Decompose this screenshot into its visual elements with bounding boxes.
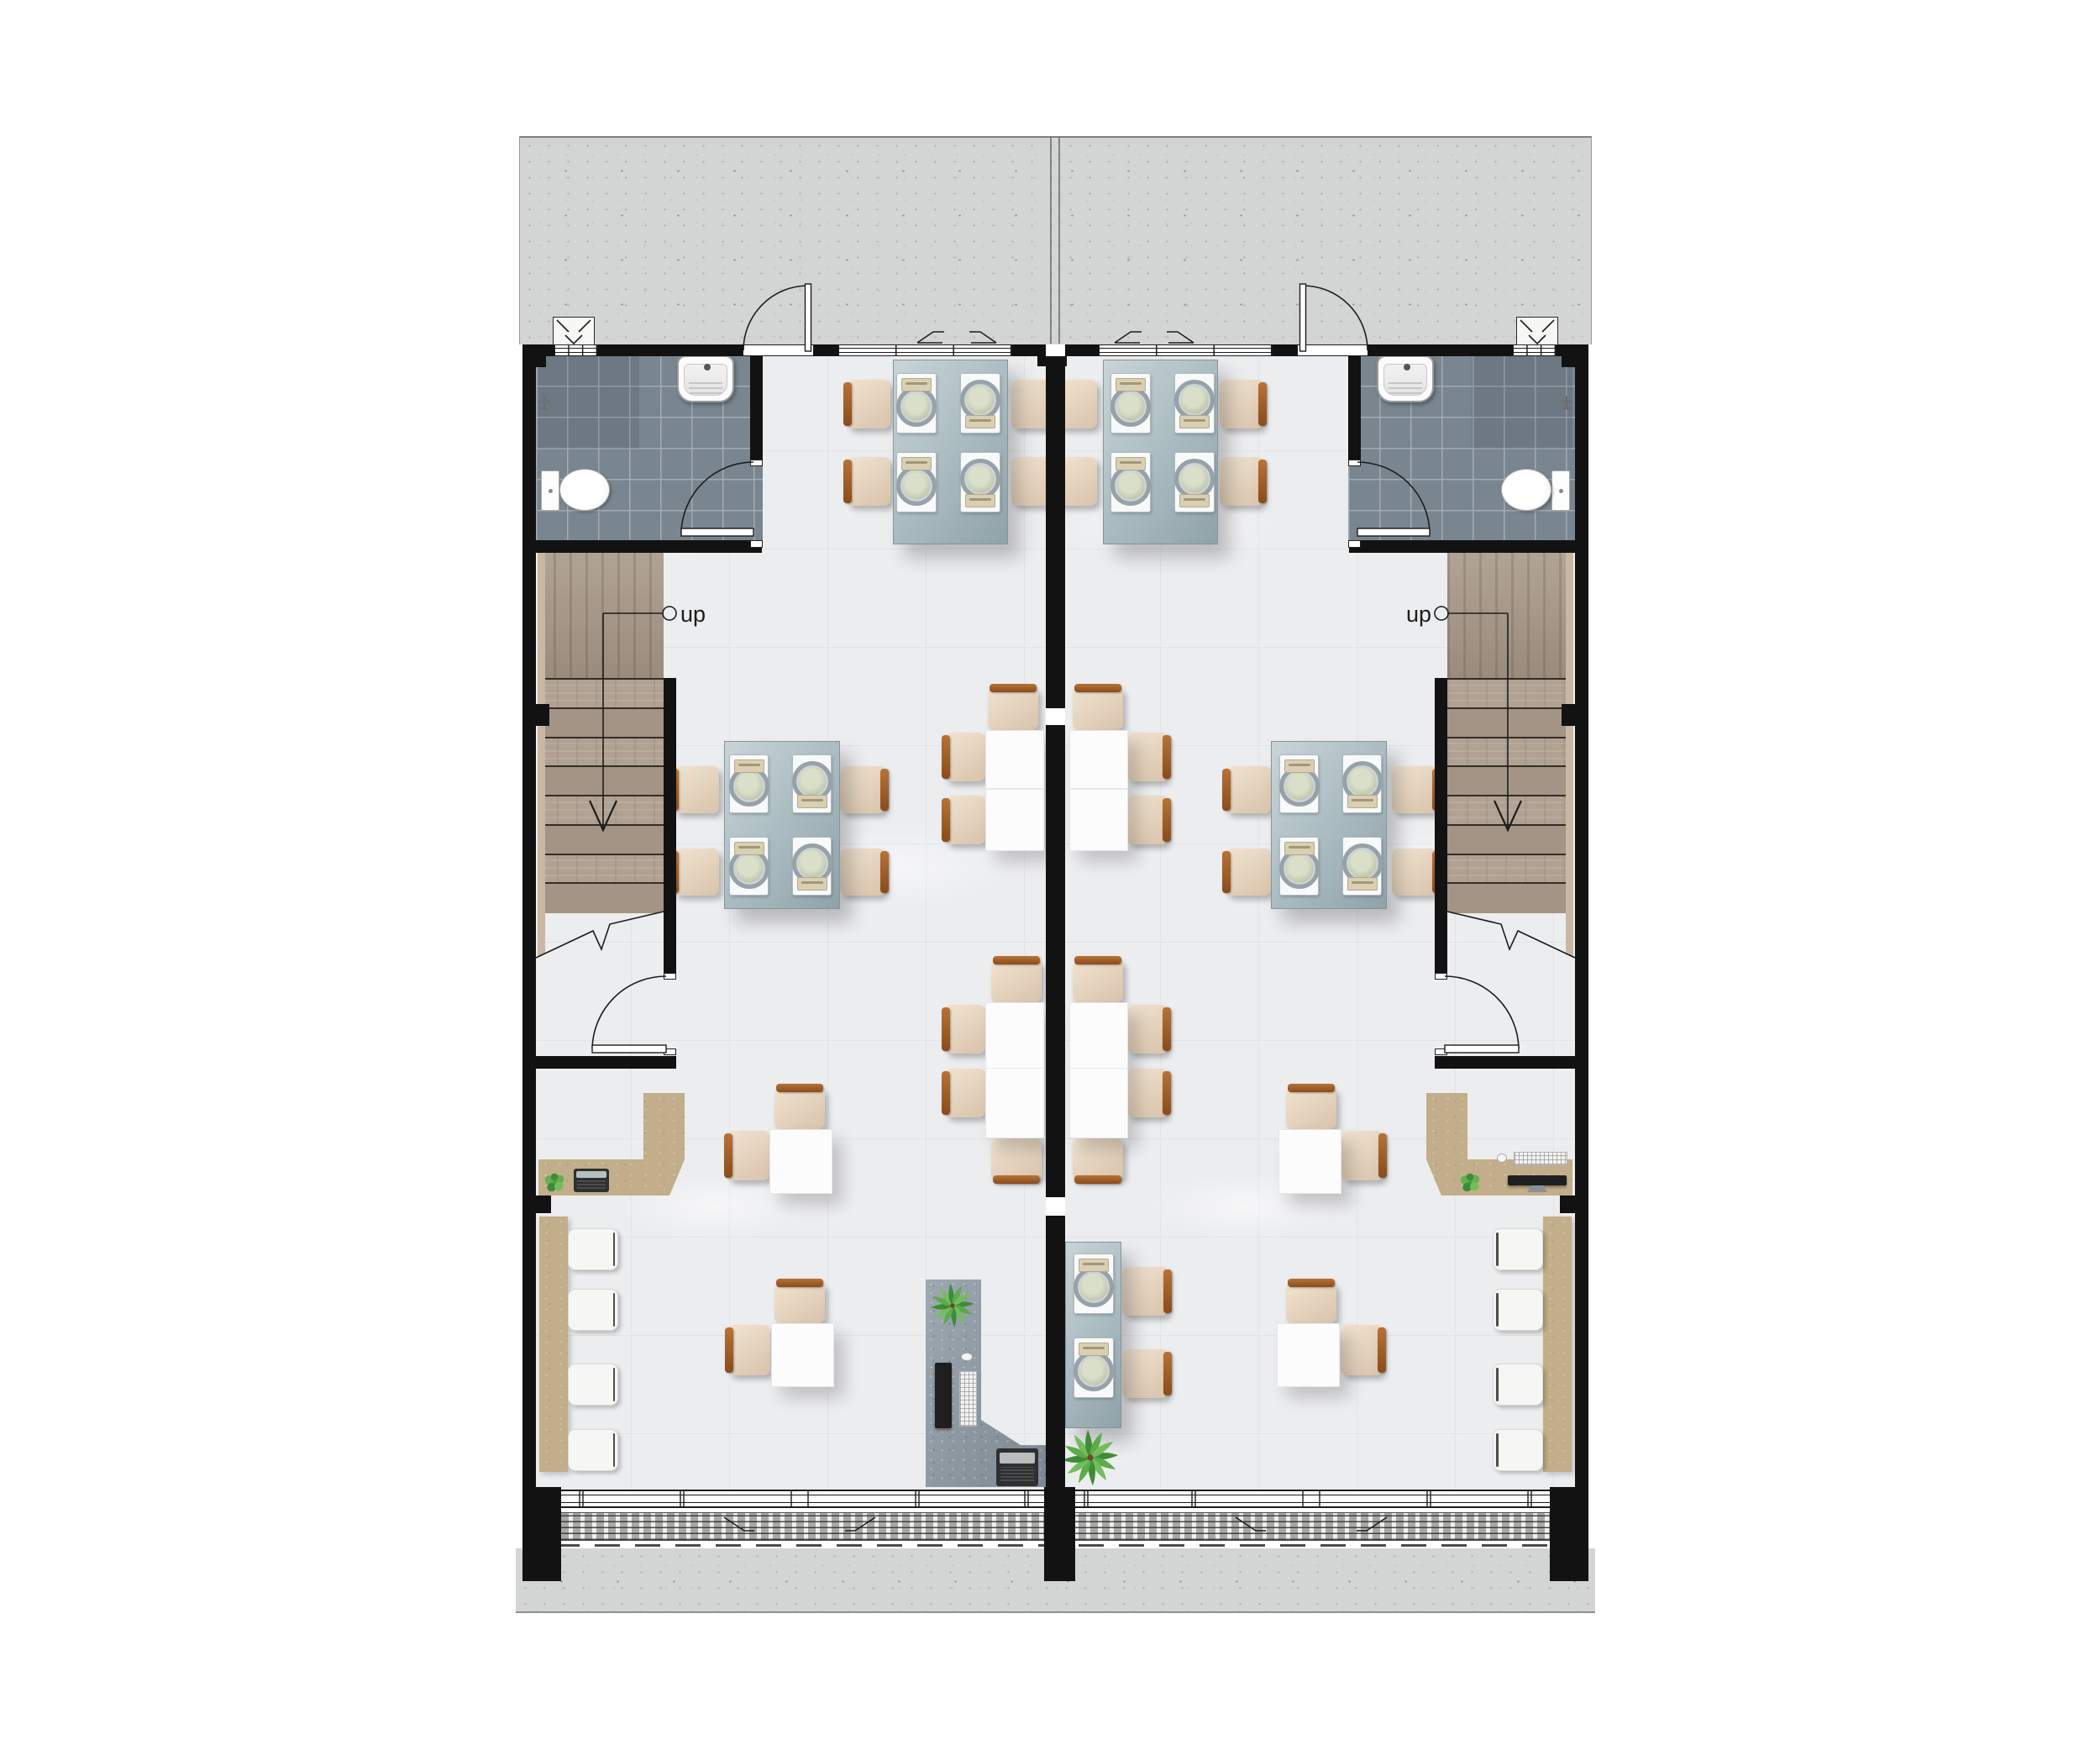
wall: [1046, 356, 1065, 1487]
wall: [522, 540, 762, 553]
door-jamb: [1348, 540, 1361, 548]
machine-drum: [960, 380, 1000, 420]
staircase-left: [538, 552, 664, 958]
washing-machine: [1074, 1253, 1114, 1314]
stair-tread: [538, 882, 664, 913]
washing-machine: [1342, 837, 1382, 896]
chair: [1057, 380, 1097, 428]
machine-panel: [1116, 457, 1146, 470]
washing-machine: [896, 452, 937, 512]
chair-backrest: [1163, 798, 1171, 842]
machine-drum: [1174, 459, 1215, 499]
dining-table: [771, 1323, 834, 1387]
machine-drum: [960, 459, 1000, 499]
stair-tread: [1447, 737, 1573, 768]
chair-backrest: [1378, 1133, 1387, 1178]
bathroom-door-left: [681, 462, 753, 536]
machine-drum: [1110, 465, 1151, 506]
wall: [1065, 344, 1099, 356]
faucet-dot: [704, 364, 711, 370]
chair: [1122, 1267, 1168, 1316]
bathroom-left-floor: [536, 355, 763, 540]
laundry-sink: [1377, 355, 1434, 402]
wall: [1435, 678, 1447, 973]
wall: [1562, 704, 1575, 726]
openings-layer: [0, 0, 2100, 1750]
chair-backrest: [724, 1133, 732, 1178]
washing-machine: [1174, 452, 1215, 512]
entry-mat-left: [561, 1512, 1044, 1541]
chair-backrest: [942, 735, 950, 779]
chair: [674, 849, 719, 896]
bench-base: [539, 1217, 568, 1472]
wall: [813, 344, 838, 356]
machine-drum: [1074, 1267, 1114, 1307]
wall-gap: [1046, 1197, 1065, 1216]
chair-backrest: [1378, 1327, 1386, 1373]
shower-zone: [538, 355, 639, 449]
chair-backrest: [1222, 769, 1231, 811]
bench-cushion: [568, 1289, 618, 1331]
washing-machine: [1279, 837, 1319, 896]
wall: [598, 344, 743, 356]
laptop: [574, 1169, 609, 1192]
wall: [536, 704, 549, 726]
machine-panel: [797, 795, 827, 808]
chair-backrest: [725, 1327, 733, 1373]
door-jamb: [664, 1048, 676, 1055]
chair: [991, 1138, 1042, 1180]
dining-table: [1277, 1323, 1340, 1387]
machine-drum: [1279, 766, 1320, 807]
unit-right-floor: [1065, 356, 1575, 1490]
stair-tread: [538, 737, 664, 768]
chair: [1220, 457, 1263, 506]
wall: [522, 1056, 676, 1069]
dining-table: [1278, 1129, 1341, 1194]
stair-tread: [538, 795, 664, 826]
sidewalk-bottom: [516, 1548, 1595, 1613]
stair-tread: [538, 854, 664, 885]
stair-direction-right: [1435, 607, 1521, 830]
wall: [1562, 344, 1585, 367]
machine-drum: [792, 761, 832, 801]
chair-backrest: [1288, 1279, 1334, 1287]
entry-mat-right: [1067, 1512, 1550, 1541]
chair-backrest: [1163, 1352, 1172, 1395]
drain-marks-right: [1520, 320, 1554, 344]
bench-cushion: [1493, 1429, 1543, 1471]
window: [554, 344, 598, 356]
door-jamb: [1435, 973, 1447, 980]
wall: [522, 344, 546, 367]
machine-panel: [1079, 1343, 1109, 1356]
machine-panel: [1347, 877, 1378, 891]
machine-panel: [1079, 1259, 1109, 1272]
shower-tap-icon-left: [538, 396, 550, 408]
wall: [522, 1196, 551, 1213]
machine-panel: [901, 378, 932, 392]
stair-landing: [538, 552, 664, 678]
machine-panel: [734, 759, 764, 773]
wall: [522, 344, 536, 1487]
chair-backrest: [1163, 1007, 1171, 1051]
dining-table: [985, 730, 1044, 851]
chair: [1127, 1005, 1168, 1054]
stair-tread: [538, 824, 664, 855]
service-counter: [926, 1280, 1050, 1487]
stair-tread: [1447, 854, 1573, 885]
stair-tread: [1447, 765, 1573, 796]
machine-drum: [1110, 386, 1151, 427]
monitor: [1508, 1175, 1567, 1185]
chair-backrest: [1432, 769, 1441, 811]
stair-tread: [1447, 795, 1573, 826]
toilet-bowl: [559, 469, 610, 511]
entry-door-right: [1300, 284, 1368, 351]
toilet-tank: [1551, 470, 1570, 511]
washing-machine: [729, 754, 769, 813]
wall: [522, 344, 554, 356]
stair-up-label-left: up: [680, 602, 706, 627]
machine-drum: [1074, 1351, 1114, 1391]
chair: [1011, 380, 1055, 428]
ground-layer: [0, 0, 2100, 1750]
door-jamb: [750, 540, 763, 548]
chair: [1073, 1138, 1123, 1180]
chair: [674, 766, 719, 813]
party-wall-sidewalk-lines: [1051, 137, 1059, 344]
staircase-right: [1447, 552, 1573, 958]
washing-machine: [1342, 754, 1382, 813]
window: [1099, 344, 1273, 356]
stair-tread: [538, 765, 664, 796]
machine-drum: [1342, 843, 1383, 884]
chair: [945, 1005, 985, 1054]
chair: [1341, 1131, 1383, 1180]
washing-machine: [792, 837, 832, 896]
machine-panel: [797, 877, 827, 891]
washing-machine: [1074, 1337, 1114, 1398]
bench-cushion: [568, 1429, 618, 1471]
stair-break-left: [536, 912, 664, 958]
chair: [1392, 849, 1437, 896]
machine-drum: [792, 843, 832, 884]
stair-stringer: [538, 552, 545, 958]
laundry-sink: [677, 355, 734, 402]
machine-panel: [1284, 759, 1315, 773]
monitor-stand: [1527, 1185, 1547, 1192]
stair-tread: [1447, 824, 1573, 855]
chair-backrest: [670, 851, 679, 893]
washing-machine: [960, 373, 1000, 434]
bathroom-right-floor: [1348, 355, 1575, 540]
wall: [1348, 344, 1361, 463]
door-jamb: [664, 973, 676, 980]
machine-drum: [1279, 849, 1320, 889]
machine-drum: [729, 849, 769, 889]
rooms-layer: [0, 0, 2100, 1750]
chair: [991, 959, 1042, 1002]
chair-backrest: [880, 851, 889, 893]
wall: [750, 344, 763, 463]
mouse: [1497, 1154, 1507, 1163]
drain-marks-left: [557, 320, 591, 344]
chair: [1127, 796, 1168, 844]
reception-desk: [538, 1093, 685, 1196]
dining-table: [1069, 1002, 1128, 1138]
chair-backrest: [1163, 1071, 1171, 1115]
machine-table: [1271, 741, 1387, 909]
chair: [988, 687, 1038, 730]
chair-backrest: [776, 1279, 822, 1287]
stair-up-label-right: up: [1398, 602, 1431, 627]
machine-table: [1065, 1242, 1121, 1428]
plant-shrub: [543, 1171, 565, 1193]
washing-machine: [1110, 452, 1151, 512]
machine-panel: [1179, 494, 1210, 507]
chair-backrest: [942, 1007, 950, 1051]
machine-table: [724, 741, 840, 909]
machine-table: [893, 360, 1008, 544]
machine-panel: [901, 457, 932, 470]
machine-panel: [1284, 842, 1315, 855]
machine-table: [1103, 360, 1218, 544]
dining-table: [985, 1002, 1044, 1138]
chair-backrest: [1222, 851, 1231, 893]
wall: [1273, 344, 1298, 356]
machine-panel: [965, 415, 995, 428]
stair-door-left: [592, 976, 666, 1053]
chair: [1286, 1087, 1336, 1129]
door-jamb: [1348, 460, 1361, 466]
wall: [1368, 344, 1513, 356]
stair-tread: [538, 707, 664, 738]
drain-pit: [1516, 317, 1558, 345]
wall-gap: [1046, 708, 1065, 725]
stair-stringer: [1566, 552, 1573, 958]
keyboard: [1514, 1152, 1567, 1165]
storefront-window-right: [1067, 1490, 1550, 1508]
keyboard: [959, 1371, 977, 1427]
chair-backrest: [1074, 684, 1121, 692]
chair-backrest: [1258, 382, 1267, 426]
machine-panel: [1347, 795, 1378, 808]
chair-backrest: [993, 956, 1039, 964]
washing-machine: [729, 837, 769, 896]
toilet-tank: [541, 470, 559, 511]
slide-arrows: [724, 1517, 1387, 1531]
wall: [1044, 1487, 1075, 1581]
chair: [1127, 733, 1168, 781]
storefront-window-left: [561, 1490, 1044, 1508]
shower-tap-icon-right: [1561, 396, 1572, 408]
chair-backrest: [942, 1071, 950, 1115]
chair-backrest: [1074, 1175, 1121, 1184]
chair: [1392, 766, 1437, 813]
window: [838, 344, 1012, 356]
chair: [774, 1087, 825, 1129]
chair-backrest: [1163, 735, 1171, 779]
wall: [1575, 344, 1588, 1487]
chair: [1341, 1325, 1383, 1375]
chair-backrest: [776, 1084, 822, 1092]
chair-backrest: [843, 382, 852, 426]
chair-backrest: [1258, 460, 1267, 503]
chair: [847, 457, 890, 506]
chair: [1226, 766, 1271, 813]
wall: [1349, 540, 1588, 553]
chair-backrest: [942, 798, 950, 842]
bench-cushion: [1493, 1289, 1543, 1331]
mouse: [961, 1353, 973, 1361]
chair: [1226, 849, 1271, 896]
sidewalk-top: [519, 136, 1592, 344]
reception-desk: [1426, 1093, 1572, 1196]
machine-drum: [896, 465, 937, 506]
floor-plan: up up: [0, 0, 2100, 1750]
machine-drum: [1174, 380, 1215, 420]
chair: [774, 1282, 825, 1323]
chair-backrest: [1050, 382, 1058, 426]
vent-louver-icons: [917, 332, 1194, 343]
washing-machine: [896, 373, 937, 434]
chair-backrest: [1050, 460, 1058, 503]
chair: [840, 849, 885, 896]
washing-machine: [1174, 373, 1215, 434]
stair-direction-left: [590, 607, 676, 830]
walls-layer: [0, 0, 2100, 1750]
chair-backrest: [993, 1175, 1039, 1184]
machine-panel: [965, 494, 995, 507]
chair: [945, 733, 985, 781]
bathroom-door-right: [1357, 462, 1430, 536]
toilet-bowl: [1501, 469, 1551, 511]
furniture-layer: [0, 0, 2100, 1750]
storefront-joints: [580, 1490, 1531, 1508]
washing-machine: [792, 754, 832, 813]
stair-landing: [1447, 552, 1573, 678]
washing-machine: [1279, 754, 1319, 813]
chair: [1122, 1349, 1168, 1398]
machine-panel: [734, 842, 764, 855]
unit-left-floor: [536, 356, 1046, 1490]
bench-base: [1543, 1217, 1572, 1472]
bench-cushion: [1493, 1228, 1543, 1270]
chair-backrest: [1074, 956, 1121, 964]
washing-machine: [1110, 373, 1151, 434]
chair: [1220, 380, 1263, 428]
entry-door-left: [743, 284, 811, 351]
chair-backrest: [1053, 460, 1062, 503]
chair-backrest: [1288, 1084, 1334, 1092]
machine-panel: [1116, 378, 1146, 392]
stair-break-right: [1447, 912, 1575, 958]
entry-threshold: [1298, 344, 1368, 356]
faucet-dot: [1404, 364, 1410, 370]
laptop: [996, 1448, 1038, 1486]
chair: [945, 1069, 985, 1117]
wall: [522, 1487, 561, 1581]
chair-backrest: [1432, 851, 1441, 893]
wall: [1550, 1487, 1588, 1581]
bench-cushion: [1493, 1364, 1543, 1406]
chair-backrest: [1163, 1269, 1172, 1313]
chair: [1073, 959, 1123, 1002]
window: [1513, 344, 1557, 356]
chair: [847, 380, 890, 428]
chair-backrest: [843, 460, 852, 503]
chair-backrest: [880, 769, 889, 811]
stair-door-right: [1445, 976, 1519, 1053]
dining-table: [1069, 730, 1128, 851]
entry-threshold: [743, 344, 813, 356]
chair: [1127, 1069, 1168, 1117]
door-jamb: [1435, 1048, 1447, 1055]
bench-cushion: [568, 1228, 618, 1270]
machine-drum: [896, 386, 937, 427]
chair: [1073, 687, 1123, 730]
chair: [945, 796, 985, 844]
machine-drum: [1342, 761, 1383, 801]
dining-table: [769, 1129, 832, 1194]
wall: [1012, 344, 1046, 356]
wall: [1037, 356, 1067, 366]
linework-layer: [0, 0, 2100, 1750]
plant-palm: [1060, 1425, 1121, 1490]
stair-tread: [1447, 707, 1573, 738]
stair-tread: [538, 678, 664, 709]
curb-dashed-line: [554, 1544, 1557, 1547]
stair-tread: [1447, 678, 1573, 709]
wall: [1557, 344, 1588, 356]
chair: [840, 766, 885, 813]
chair-backrest: [990, 684, 1036, 692]
chair-backrest: [1053, 382, 1062, 426]
stair-tread: [1447, 882, 1573, 913]
wall: [1435, 1056, 1588, 1069]
chair-backrest: [670, 769, 679, 811]
machine-panel: [1179, 415, 1210, 428]
chair: [727, 1131, 769, 1180]
machine-drum: [729, 766, 769, 807]
drain-pit: [553, 317, 595, 345]
chair: [1286, 1282, 1336, 1323]
chair: [728, 1325, 770, 1375]
wall: [664, 678, 676, 973]
monitor: [935, 1363, 952, 1428]
plant-shrub: [1459, 1171, 1481, 1193]
washing-machine: [960, 452, 1000, 512]
plant-palm: [929, 1280, 976, 1331]
door-jamb: [750, 460, 763, 466]
wall: [1560, 1196, 1588, 1213]
chair: [1057, 457, 1097, 506]
shower-zone: [1472, 355, 1572, 449]
chair: [1011, 457, 1055, 506]
bench-cushion: [568, 1364, 618, 1406]
